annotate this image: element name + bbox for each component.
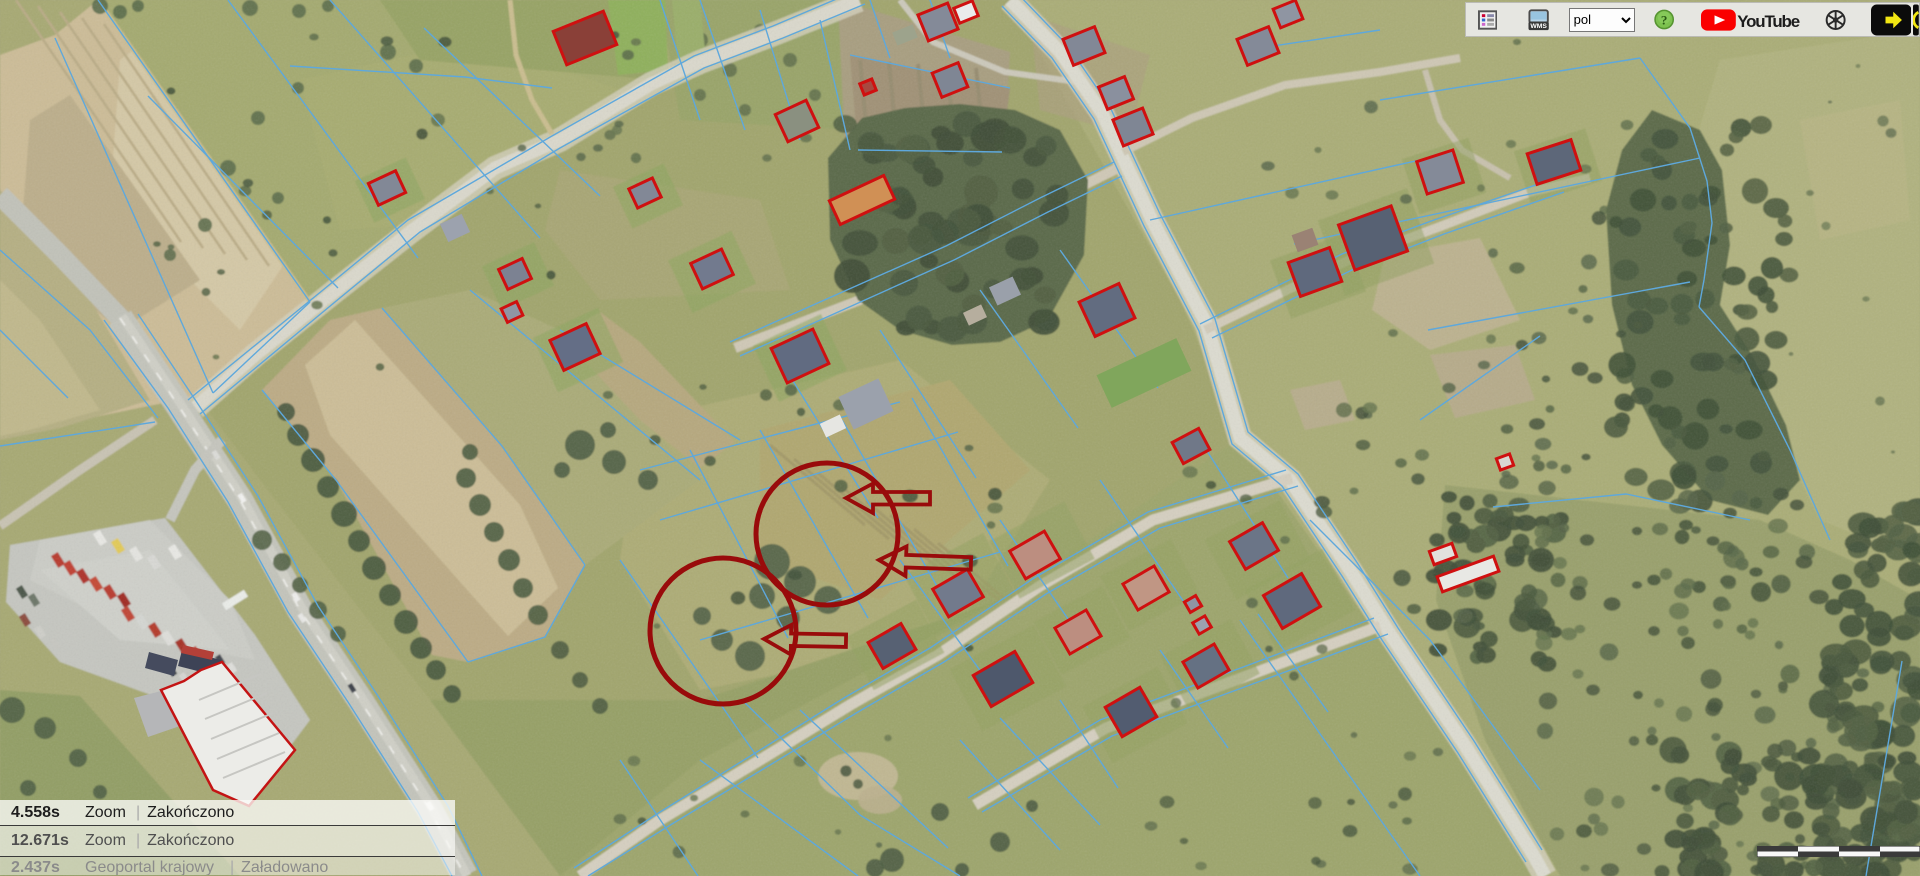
svg-text:WMS: WMS: [1531, 23, 1548, 30]
svg-text:YouTube: YouTube: [1737, 11, 1799, 30]
svg-text:?: ?: [1661, 12, 1668, 27]
